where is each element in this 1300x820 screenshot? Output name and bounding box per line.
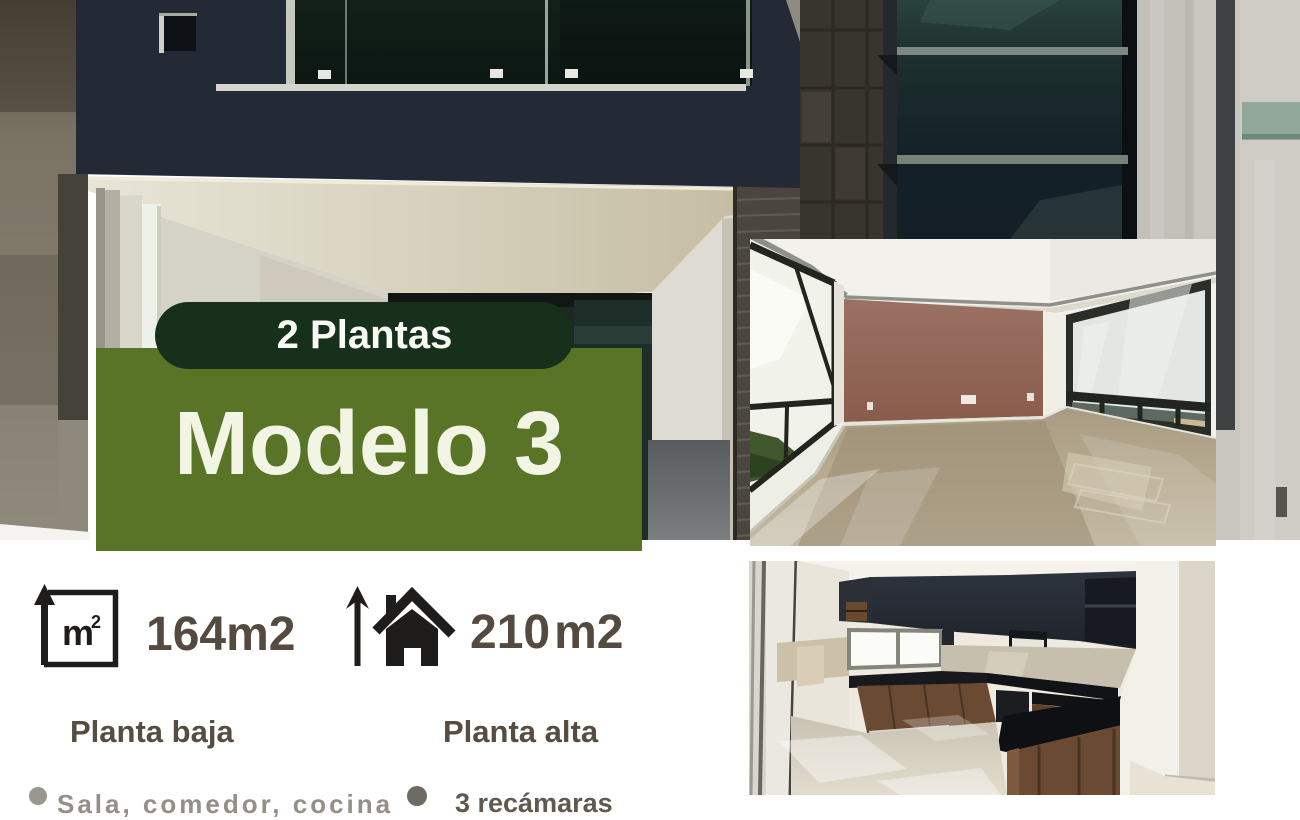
svg-text:2: 2	[91, 612, 101, 632]
svg-text:m: m	[62, 612, 94, 653]
